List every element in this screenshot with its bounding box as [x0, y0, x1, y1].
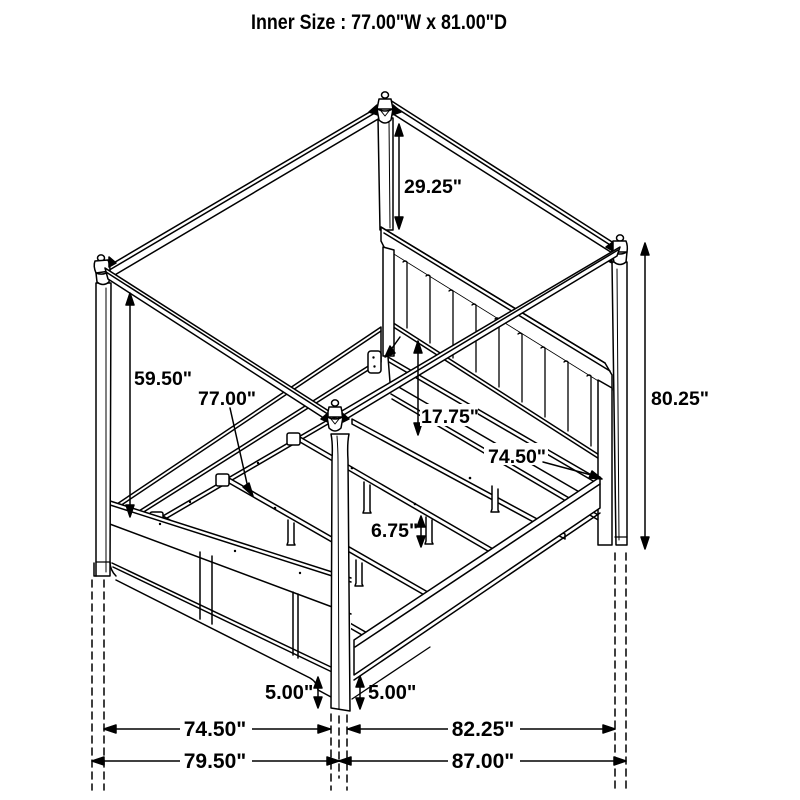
svg-text:29.25": 29.25" [404, 176, 462, 198]
svg-text:74.50": 74.50" [184, 718, 247, 741]
svg-text:17.75": 17.75" [421, 406, 479, 428]
svg-text:5.00": 5.00" [368, 682, 416, 704]
svg-text:87.00": 87.00" [452, 750, 515, 773]
svg-text:59.50": 59.50" [134, 368, 192, 390]
svg-text:Inner Size : 77.00"W x 81.00"D: Inner Size : 77.00"W x 81.00"D [251, 11, 507, 34]
svg-text:5.00": 5.00" [265, 682, 313, 704]
svg-text:82.25": 82.25" [452, 718, 515, 741]
svg-text:6.75": 6.75" [371, 520, 418, 542]
svg-text:79.50": 79.50" [184, 750, 247, 773]
svg-text:80.25": 80.25" [651, 388, 709, 410]
svg-text:74.50": 74.50" [488, 446, 546, 468]
svg-text:77.00": 77.00" [198, 388, 256, 410]
